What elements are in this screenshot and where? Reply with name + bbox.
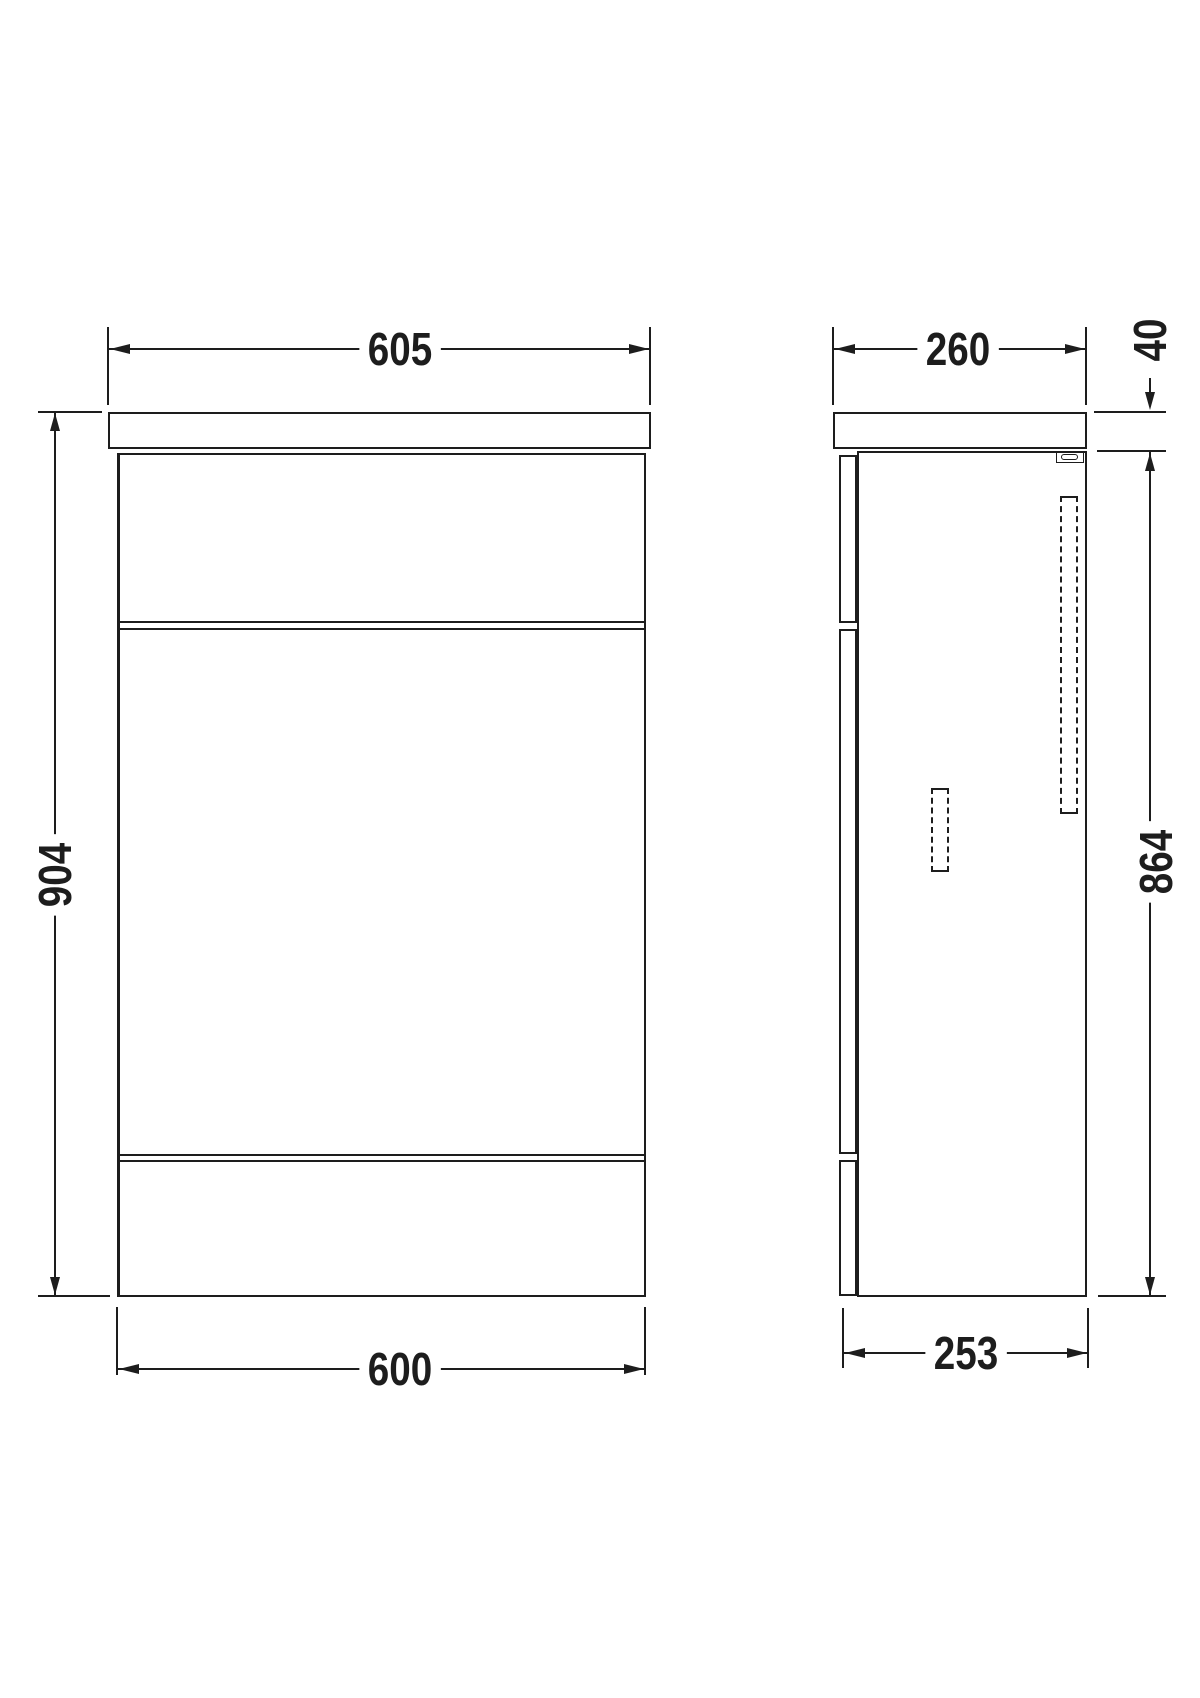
dim-864-extension-line-bottom <box>1098 1295 1166 1297</box>
dim-600-arrow-left <box>119 1364 139 1374</box>
dim-253-arrow-right <box>1067 1348 1087 1358</box>
dim-605-extension-line-right <box>649 327 651 405</box>
worktop-clip-slot <box>1061 454 1078 460</box>
dim-label-side-depth-bottom: 253 <box>925 1328 1006 1378</box>
dim-605-extension-line-left <box>107 327 109 405</box>
side-view-worktop <box>833 412 1087 449</box>
dim-600-extension-line-left <box>116 1307 118 1375</box>
dim-label-side-depth-top: 260 <box>917 324 998 374</box>
front-view-cabinet-body <box>117 453 646 1297</box>
dim-904-extension-line-bottom <box>38 1295 110 1297</box>
dim-253-arrow-left <box>845 1348 865 1358</box>
dim-label-side-height: 864 <box>1131 821 1181 902</box>
dim-600-arrow-right <box>624 1364 644 1374</box>
dim-904-extension-line-top <box>38 411 102 413</box>
dim-260-extension-line-left <box>832 327 834 405</box>
dim-253-extension-line-left <box>842 1308 844 1368</box>
dim-260-arrow-left <box>835 344 855 354</box>
dim-label-worktop-thickness: 40 <box>1125 310 1175 370</box>
dim-label-front-height: 904 <box>30 834 80 915</box>
hidden-fixing-bracket-dashed <box>931 788 949 872</box>
front-view-worktop <box>108 412 651 449</box>
front-drawer-divider-lower-line <box>120 628 644 630</box>
dim-904-arrow-up <box>50 413 60 431</box>
dim-label-front-width-top: 605 <box>359 324 440 374</box>
side-door-edge-bottom <box>839 1160 857 1296</box>
dim-904-arrow-down <box>50 1277 60 1295</box>
dim-260-arrow-right <box>1065 344 1085 354</box>
front-plinth-divider-lower-line <box>120 1160 644 1162</box>
side-view-cabinet-body <box>857 451 1087 1297</box>
dim-600-extension-line-right <box>644 1307 646 1375</box>
dim-864-arrow-up <box>1145 453 1155 471</box>
dim-605-arrow-left <box>110 344 130 354</box>
technical-drawing-canvas: 605 260 40 864 904 600 253 <box>0 0 1200 1698</box>
dim-260-extension-line-right <box>1085 327 1087 405</box>
side-door-edge-top <box>839 455 857 623</box>
dim-40-extension-line-lower <box>1097 450 1166 452</box>
hidden-flush-channel-dashed <box>1060 496 1078 814</box>
front-drawer-divider-upper-line <box>120 621 644 623</box>
dim-253-extension-line-right <box>1087 1308 1089 1368</box>
side-door-edge-middle <box>839 629 857 1154</box>
dim-label-front-width-bottom: 600 <box>359 1344 440 1394</box>
dim-40-extension-line-upper <box>1094 411 1166 413</box>
dim-605-arrow-right <box>629 344 649 354</box>
dim-40-arrow-down <box>1145 392 1155 410</box>
dim-864-arrow-down <box>1145 1277 1155 1295</box>
front-plinth-divider-upper-line <box>120 1154 644 1156</box>
